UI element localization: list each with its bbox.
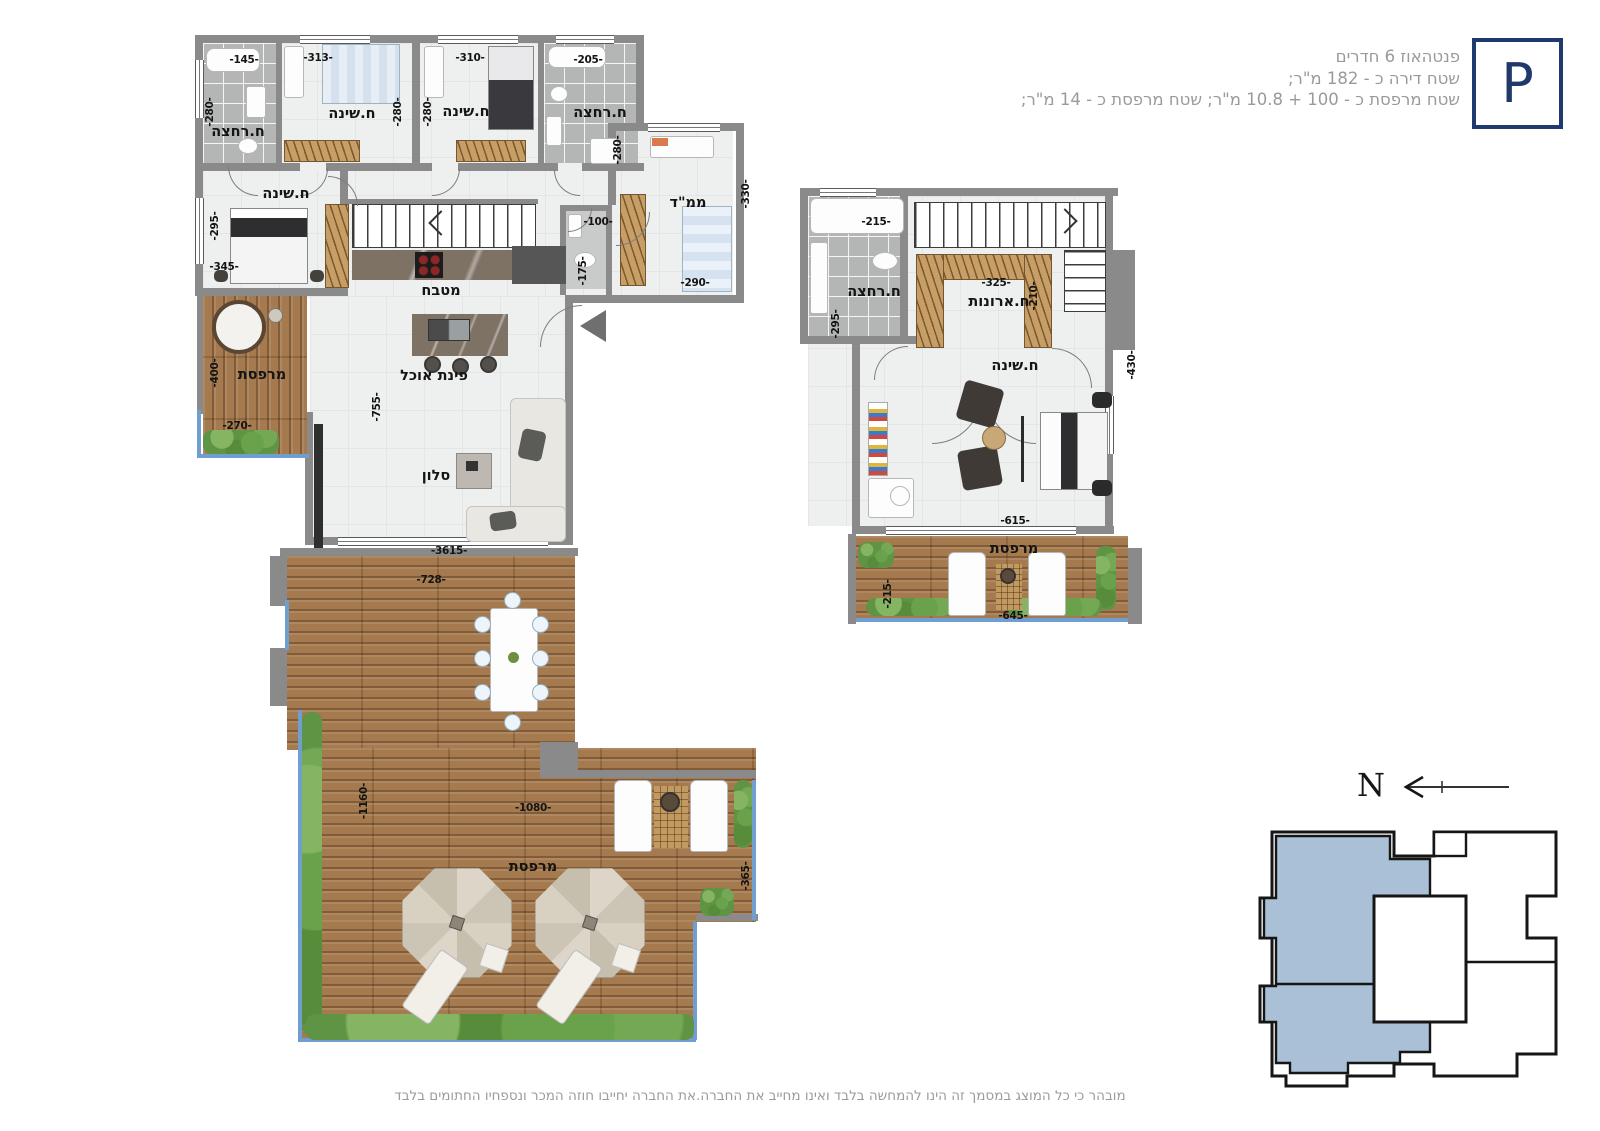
header-line2: שטח דירה כ - 182 מ"ר; bbox=[1021, 68, 1460, 90]
bar-stool bbox=[480, 356, 497, 373]
stairs-upper bbox=[914, 202, 1106, 248]
toilet bbox=[550, 86, 568, 102]
dim: -270- bbox=[222, 421, 251, 432]
wall-right-bath2 bbox=[636, 35, 644, 131]
header-line1: פנטהאוז 6 חדרים bbox=[1021, 46, 1460, 68]
dining-chair bbox=[474, 650, 491, 667]
side-table-round bbox=[268, 308, 283, 323]
vanity-sink bbox=[246, 86, 266, 118]
wall-mamad-right bbox=[736, 123, 744, 303]
disclaimer-text: מובהר כי כל המוצג במסמך זה הינו להמחשה ב… bbox=[260, 1088, 1260, 1104]
dim: -280- bbox=[613, 135, 624, 164]
toilet bbox=[872, 252, 898, 270]
sofa-cushion bbox=[489, 510, 517, 531]
sun-lounger bbox=[948, 552, 986, 616]
room-label-bed1: ח.שינה bbox=[328, 107, 375, 122]
dim: -3615- bbox=[431, 546, 467, 557]
cooktop bbox=[415, 252, 443, 278]
room-label-up-bedroom: ח.שינה bbox=[991, 359, 1038, 374]
desk bbox=[284, 46, 304, 98]
wardrobe bbox=[325, 204, 349, 288]
wall-up-balc-left bbox=[848, 534, 856, 624]
dim: -215- bbox=[883, 579, 894, 608]
desk-accent bbox=[652, 138, 668, 146]
dim: -175- bbox=[578, 256, 589, 285]
dim: -615- bbox=[1000, 516, 1029, 527]
header-text: פנטהאוז 6 חדרים שטח דירה כ - 182 מ"ר; שט… bbox=[1021, 46, 1460, 111]
dim: -205- bbox=[573, 55, 602, 66]
window-mamad-top bbox=[648, 123, 720, 132]
window-bath2-top bbox=[556, 35, 614, 44]
dim: -280- bbox=[393, 97, 404, 126]
vanity-sink bbox=[546, 116, 562, 146]
dim: -365- bbox=[741, 861, 752, 890]
dim: -400- bbox=[210, 358, 221, 387]
fridge-unit bbox=[512, 246, 566, 284]
terrace-step-wall bbox=[540, 742, 578, 778]
window-bed3-left bbox=[195, 198, 204, 264]
vanity-sink bbox=[810, 242, 828, 314]
wall-bed3-bottom bbox=[195, 288, 348, 296]
room-label-up-bath: ח.רחצה bbox=[847, 285, 901, 300]
wall-up-left bbox=[800, 188, 808, 340]
umbrella-pole bbox=[582, 915, 598, 931]
railing bbox=[856, 618, 1128, 622]
north-arrow: N bbox=[1345, 764, 1520, 808]
fire-bowl bbox=[660, 792, 680, 812]
room-label-terrace: מרפסת bbox=[509, 860, 558, 875]
sun-lounger bbox=[690, 780, 728, 852]
room-label-kitchen: מטבח bbox=[421, 284, 460, 299]
dim: -1160- bbox=[359, 783, 370, 819]
dining-chair bbox=[504, 714, 521, 731]
sun-lounger bbox=[614, 780, 652, 852]
desk bbox=[424, 46, 444, 98]
dim: -145- bbox=[229, 55, 258, 66]
coffee-table bbox=[456, 453, 492, 489]
hedge bbox=[866, 598, 956, 616]
wall-up-balc-right bbox=[1128, 548, 1142, 624]
dim: -645- bbox=[998, 611, 1027, 622]
core-mask bbox=[642, 30, 742, 123]
railing bbox=[285, 600, 289, 650]
window-bed1-top bbox=[300, 35, 370, 44]
terrace-pier bbox=[270, 648, 287, 706]
coffee-table-book bbox=[466, 461, 478, 471]
north-letter: N bbox=[1357, 766, 1385, 804]
room-label-mamad: ממ"ד bbox=[669, 196, 706, 211]
header-line3: שטח מרפסת כ - 100 + 10.8 מ"ר; שטח מרפסת … bbox=[1021, 89, 1460, 111]
key-plan-core bbox=[1374, 896, 1466, 1022]
closet-left bbox=[916, 254, 944, 348]
dim: -755- bbox=[372, 392, 383, 421]
entry-arrow bbox=[580, 310, 606, 342]
dining-chair bbox=[504, 592, 521, 609]
room-label-dining: פינת אוכל bbox=[400, 369, 468, 384]
key-plan bbox=[1250, 826, 1562, 1098]
wall-div-bath1-bed1 bbox=[276, 35, 282, 166]
nightstand bbox=[1092, 392, 1112, 408]
wall-up-right-pier bbox=[1113, 250, 1135, 350]
dim: -295- bbox=[831, 309, 842, 338]
window-bed2-top bbox=[438, 35, 518, 44]
toilet bbox=[238, 138, 258, 154]
dim: -280- bbox=[205, 97, 216, 126]
nightstand bbox=[1092, 480, 1112, 496]
railing bbox=[199, 454, 309, 458]
wall-terrace-top bbox=[280, 548, 578, 556]
bed-double bbox=[230, 208, 308, 284]
dim: -325- bbox=[981, 278, 1010, 289]
dining-chair bbox=[532, 650, 549, 667]
hedge bbox=[306, 1014, 694, 1040]
railing bbox=[752, 780, 756, 920]
wall-mamad-bottom bbox=[565, 295, 744, 303]
dim: -280- bbox=[423, 97, 434, 126]
room-label-bath1: ח.רחצה bbox=[211, 125, 265, 140]
room-label-up-closet: ח.ארונות bbox=[968, 295, 1029, 310]
tv-unit bbox=[314, 424, 323, 552]
room-label-bed2: ח.שינה bbox=[442, 105, 489, 120]
dim: -728- bbox=[416, 575, 445, 586]
nightstand bbox=[310, 270, 324, 282]
dim: -330- bbox=[741, 179, 752, 208]
hedge bbox=[734, 780, 752, 848]
dining-chair bbox=[474, 684, 491, 701]
window-up-bath bbox=[820, 188, 876, 197]
core-bottom-wall bbox=[575, 770, 756, 778]
dining-chair bbox=[532, 616, 549, 633]
sun-lounger bbox=[1028, 552, 1066, 616]
wall-div-bed2-bath2 bbox=[538, 35, 544, 166]
wall-div-bed1-bed2 bbox=[412, 35, 420, 166]
wardrobe bbox=[284, 140, 360, 162]
armchair bbox=[957, 445, 1003, 491]
hedge bbox=[302, 712, 322, 1036]
umbrella-pole bbox=[449, 915, 465, 931]
dim: -100- bbox=[583, 217, 612, 228]
project-logo: P bbox=[1472, 38, 1563, 129]
stairs-down-flight bbox=[1064, 250, 1106, 312]
railing bbox=[197, 410, 201, 458]
bed-double bbox=[1040, 412, 1108, 490]
dining-chair bbox=[532, 684, 549, 701]
wall-up-bath-bottom bbox=[800, 336, 916, 344]
hedge bbox=[858, 542, 894, 568]
window-up-bed-bottom bbox=[886, 526, 1076, 535]
bookshelf bbox=[868, 402, 888, 476]
room-label-balcony: מרפסת bbox=[238, 368, 287, 383]
round-side-table bbox=[982, 426, 1006, 450]
room-label-bed3: ח.שינה bbox=[262, 187, 309, 202]
dim: -210- bbox=[1029, 281, 1040, 310]
dim: -430- bbox=[1127, 350, 1138, 379]
desk-chair bbox=[890, 486, 910, 506]
dim: -310- bbox=[455, 53, 484, 64]
room-label-salon: סלון bbox=[422, 469, 451, 484]
hedge bbox=[203, 430, 279, 454]
room-label-up-balcony: מרפסת bbox=[990, 542, 1039, 557]
dim: -290- bbox=[680, 278, 709, 289]
dim: -313- bbox=[303, 53, 332, 64]
fire-bowl bbox=[1000, 568, 1016, 584]
dim: -295- bbox=[210, 211, 221, 240]
logo-letter: P bbox=[1501, 57, 1534, 111]
dim: -1080- bbox=[515, 803, 551, 814]
floorplan-sheet: פנטהאוז 6 חדרים שטח דירה כ - 182 מ"ר; שט… bbox=[0, 0, 1600, 1131]
dining-chair bbox=[474, 616, 491, 633]
tv-screen bbox=[1021, 416, 1024, 482]
wardrobe bbox=[456, 140, 526, 162]
island-sink bbox=[428, 319, 470, 341]
bed-double bbox=[322, 44, 400, 104]
terrace-pier bbox=[270, 556, 287, 606]
key-plan-stair-shaft bbox=[1434, 832, 1466, 856]
hot-tub bbox=[212, 300, 266, 354]
dim: -215- bbox=[861, 217, 890, 228]
room-label-bath2: ח.רחצה bbox=[573, 106, 627, 121]
dim: -345- bbox=[209, 262, 238, 273]
hedge bbox=[700, 888, 734, 916]
table-centerpiece bbox=[508, 652, 519, 663]
bed-single bbox=[488, 46, 534, 130]
window-bath1-left bbox=[195, 60, 204, 118]
wall-up-bed-left bbox=[852, 344, 860, 534]
